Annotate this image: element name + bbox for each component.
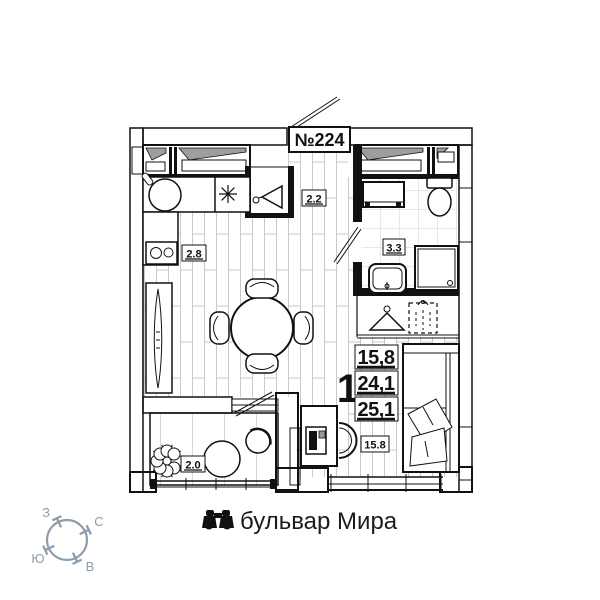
compass-west: З xyxy=(42,505,50,520)
bathroom-area-label: 3.3 xyxy=(383,239,405,255)
chair xyxy=(210,312,229,344)
right-wall-shaft2 xyxy=(459,427,472,480)
top-wall-right xyxy=(348,128,472,145)
desk xyxy=(301,406,337,466)
apartment-number-label: №224 xyxy=(289,97,350,152)
compass-north: С xyxy=(94,514,103,529)
compass-east: В xyxy=(86,559,95,574)
toilet xyxy=(427,178,452,216)
top-band-right xyxy=(355,145,459,179)
washing-machine xyxy=(363,182,404,207)
total-area-value: 25,1 xyxy=(355,397,398,421)
chair xyxy=(294,312,313,344)
street-name: бульвар Мира xyxy=(240,508,398,535)
bathroom-wall-upper xyxy=(353,145,362,222)
left-wall xyxy=(130,128,143,492)
wardrobe-zone-floor xyxy=(354,296,459,337)
dining-table xyxy=(231,297,293,359)
right-wall-shaft xyxy=(459,188,472,242)
svg-text:№224: №224 xyxy=(294,130,344,150)
compass-rose: З С Ю В xyxy=(31,505,103,574)
top-band-left xyxy=(132,145,250,178)
wardrobe xyxy=(146,283,172,393)
apartment-area-value: 24,1 xyxy=(355,371,398,395)
floor-plan: 2.2 2.8 3.3 2.0 15.8 1 15,8 xyxy=(0,0,600,600)
chair xyxy=(246,354,278,373)
bathroom-sink xyxy=(369,264,406,293)
svg-text:15.8: 15.8 xyxy=(364,440,385,452)
leader-line xyxy=(291,97,337,127)
balcony-area-label: 2.0 xyxy=(181,456,205,472)
svg-text:24,1: 24,1 xyxy=(358,373,395,395)
room-area-label: 15.8 xyxy=(361,436,389,452)
balcony-table xyxy=(204,441,240,477)
shower xyxy=(415,246,458,290)
binoculars-icon xyxy=(202,510,234,530)
kitchen-area-label: 2.8 xyxy=(182,245,206,261)
entry-floor xyxy=(287,152,348,177)
lamp-symbol xyxy=(219,185,237,203)
bedroom-window xyxy=(328,474,443,492)
right-wall xyxy=(459,145,472,492)
hallway-area-label: 2.2 xyxy=(302,190,326,206)
svg-text:15,8: 15,8 xyxy=(358,347,395,369)
living-area-value: 15,8 xyxy=(355,345,398,369)
hall-closet xyxy=(245,166,294,218)
floor-plan-page: 2.2 2.8 3.3 2.0 15.8 1 15,8 xyxy=(0,0,600,600)
chair xyxy=(246,279,278,298)
compass-south: Ю xyxy=(31,551,44,566)
top-wall-left xyxy=(143,128,287,145)
bed xyxy=(403,344,459,472)
street-label: бульвар Мира xyxy=(202,508,398,535)
svg-text:25,1: 25,1 xyxy=(358,399,395,421)
kitchen-sink xyxy=(149,179,181,211)
